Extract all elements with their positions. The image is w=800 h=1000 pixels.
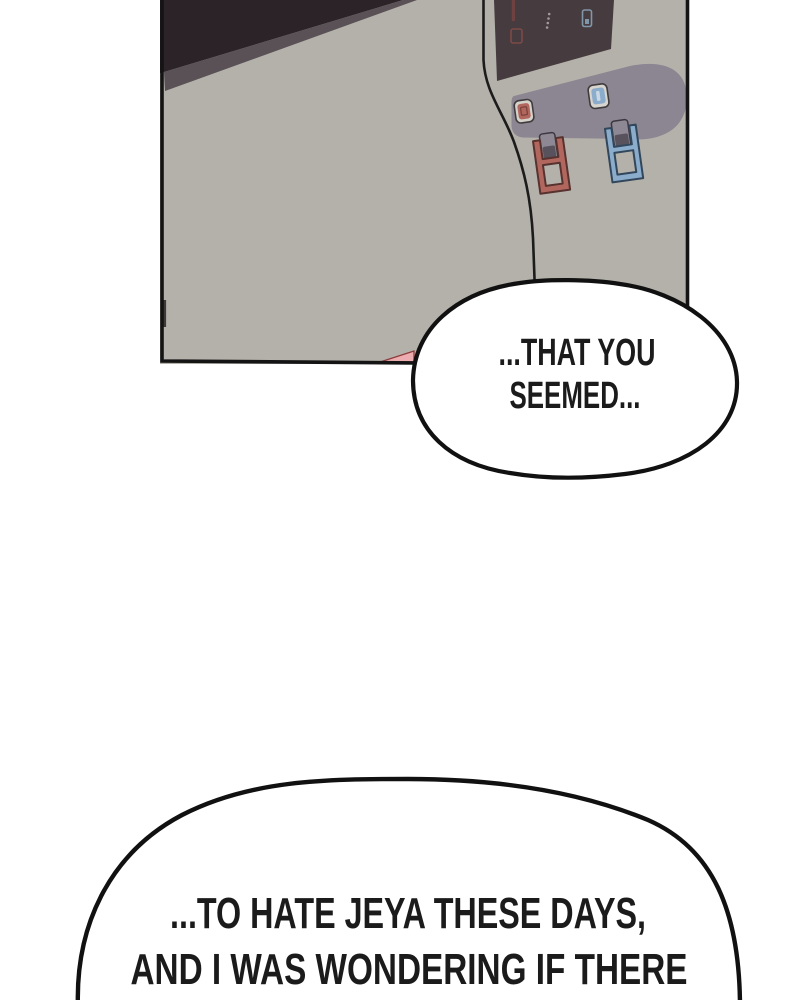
cold-water-button: [587, 83, 609, 109]
speech-bubble-1-line-2: SEEMED...: [510, 375, 641, 417]
hot-button-face: [517, 103, 531, 120]
speech-bubble-1: ...THAT YOU SEEMED...: [413, 280, 737, 478]
hot-water-button: [514, 99, 535, 124]
speech-bubble-2-line-2: AND I WAS WONDERING IF THERE: [131, 945, 688, 994]
speech-bubble-2-line-1: ...TO HATE JEYA THESE DAYS,: [170, 889, 646, 938]
speech-bubble-1-line-1: ...THAT YOU: [499, 332, 656, 374]
webtoon-page: ...THAT YOU SEEMED... ...TO HATE JEYA TH…: [0, 0, 800, 1000]
hot-indicator-bar-icon: [512, 0, 515, 21]
